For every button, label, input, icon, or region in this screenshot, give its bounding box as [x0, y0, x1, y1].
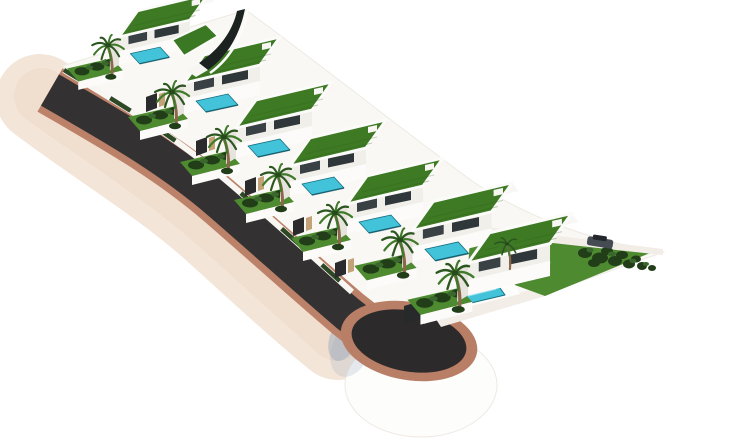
hedge — [217, 154, 225, 159]
base-shrub — [169, 123, 181, 129]
gate-pillar — [348, 258, 354, 273]
hedge — [328, 230, 336, 235]
bush — [588, 259, 600, 267]
hedge — [271, 192, 279, 197]
hedge — [375, 262, 383, 267]
palm-crown-core — [169, 90, 175, 94]
palm-crown-core — [505, 242, 509, 245]
palm-crown-core — [221, 135, 227, 139]
render-stage — [0, 0, 740, 445]
hedge — [429, 296, 438, 301]
gate-pillar — [306, 216, 312, 231]
bush-light — [587, 248, 594, 253]
palm-crown-core — [452, 270, 458, 275]
hedge — [254, 197, 262, 202]
palm-crown-core — [275, 173, 281, 177]
bush — [616, 251, 628, 259]
bush-light — [630, 259, 637, 263]
palm-crown-core — [105, 43, 111, 47]
palm-crown-core — [397, 238, 403, 243]
hedge — [393, 258, 401, 263]
hedge — [148, 114, 156, 119]
hedge — [447, 291, 456, 296]
base-shrub — [452, 306, 465, 313]
base-shrub — [275, 206, 287, 212]
base-shrub — [332, 244, 344, 250]
hedge — [165, 109, 173, 114]
hedge — [200, 159, 208, 164]
site-render — [0, 0, 740, 445]
palm-crown-core — [332, 211, 338, 215]
bush — [648, 265, 656, 271]
base-shrub — [221, 168, 233, 174]
hedge — [101, 61, 108, 65]
base-shrub — [397, 272, 409, 279]
hedge — [86, 65, 93, 69]
base-shrub — [105, 74, 116, 80]
bush-light — [608, 252, 616, 257]
hedge — [311, 235, 319, 240]
scene-root — [0, 0, 740, 445]
bush-light — [643, 262, 649, 266]
